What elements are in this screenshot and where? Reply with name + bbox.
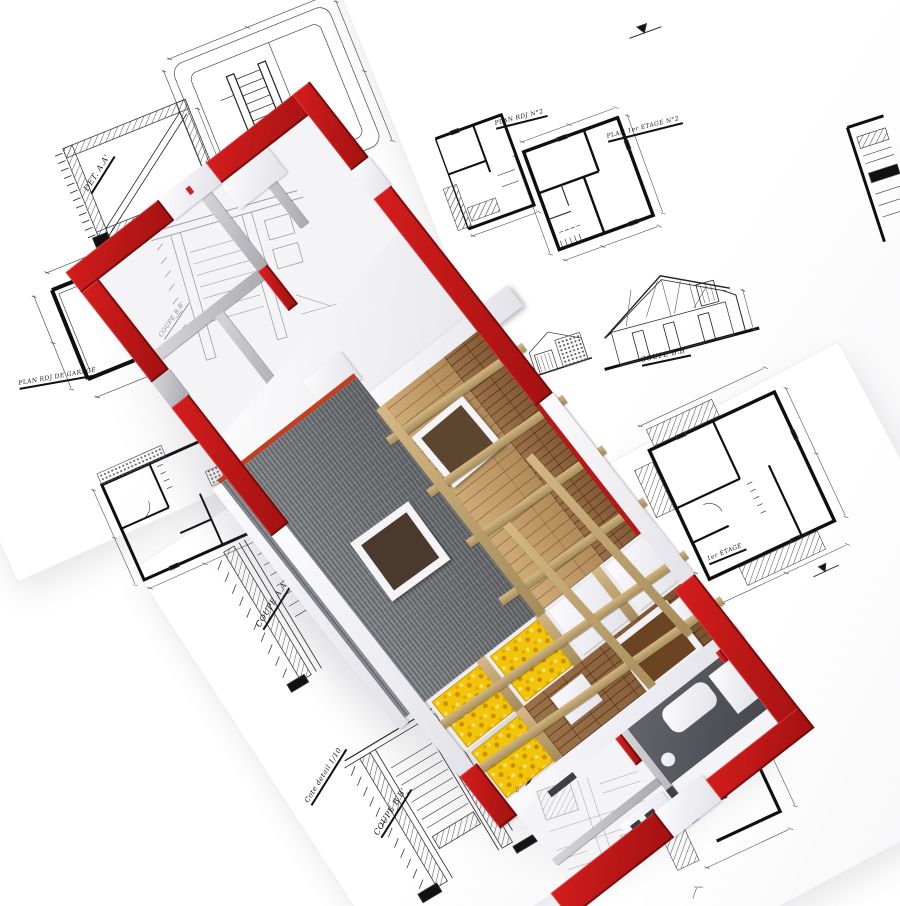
scene: COUPE C.C' DET. A.A' PLAN RDJ DE GARAGE …: [0, 0, 900, 906]
